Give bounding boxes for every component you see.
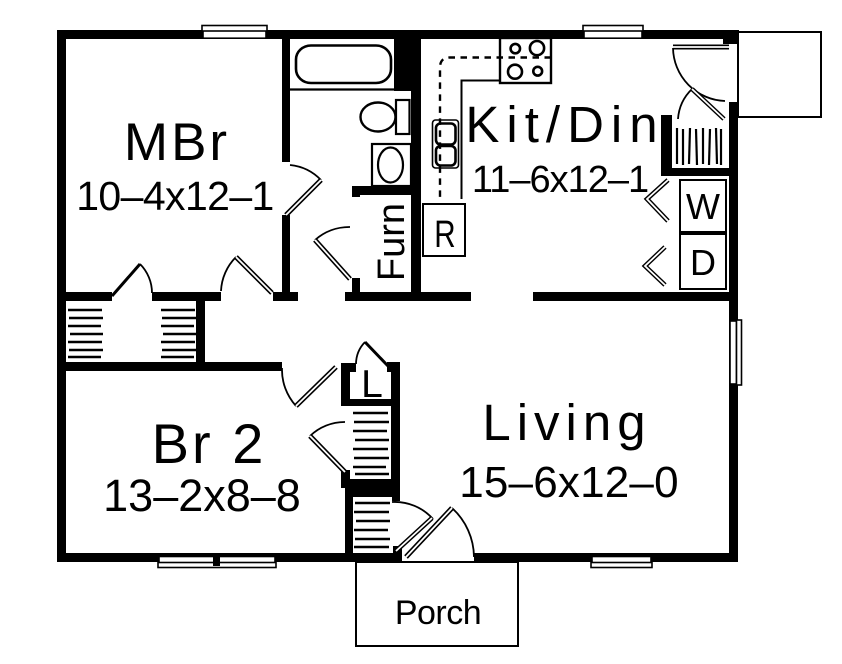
svg-text:Furn: Furn	[371, 203, 413, 281]
svg-text:10–4x12–1: 10–4x12–1	[76, 173, 274, 219]
svg-text:W: W	[686, 186, 720, 227]
svg-text:11–6x12–1: 11–6x12–1	[472, 159, 648, 201]
svg-text:Kit/Din: Kit/Din	[465, 96, 664, 153]
svg-text:D: D	[690, 242, 716, 283]
svg-text:MBr: MBr	[124, 113, 230, 172]
svg-text:13–2x8–8: 13–2x8–8	[103, 470, 301, 521]
svg-text:Br 2: Br 2	[152, 412, 267, 475]
svg-text:Living: Living	[482, 394, 651, 451]
svg-text:15–6x12–0: 15–6x12–0	[459, 458, 679, 507]
svg-text:R: R	[434, 214, 455, 256]
svg-text:Porch: Porch	[395, 594, 481, 632]
svg-text:L: L	[361, 363, 383, 406]
